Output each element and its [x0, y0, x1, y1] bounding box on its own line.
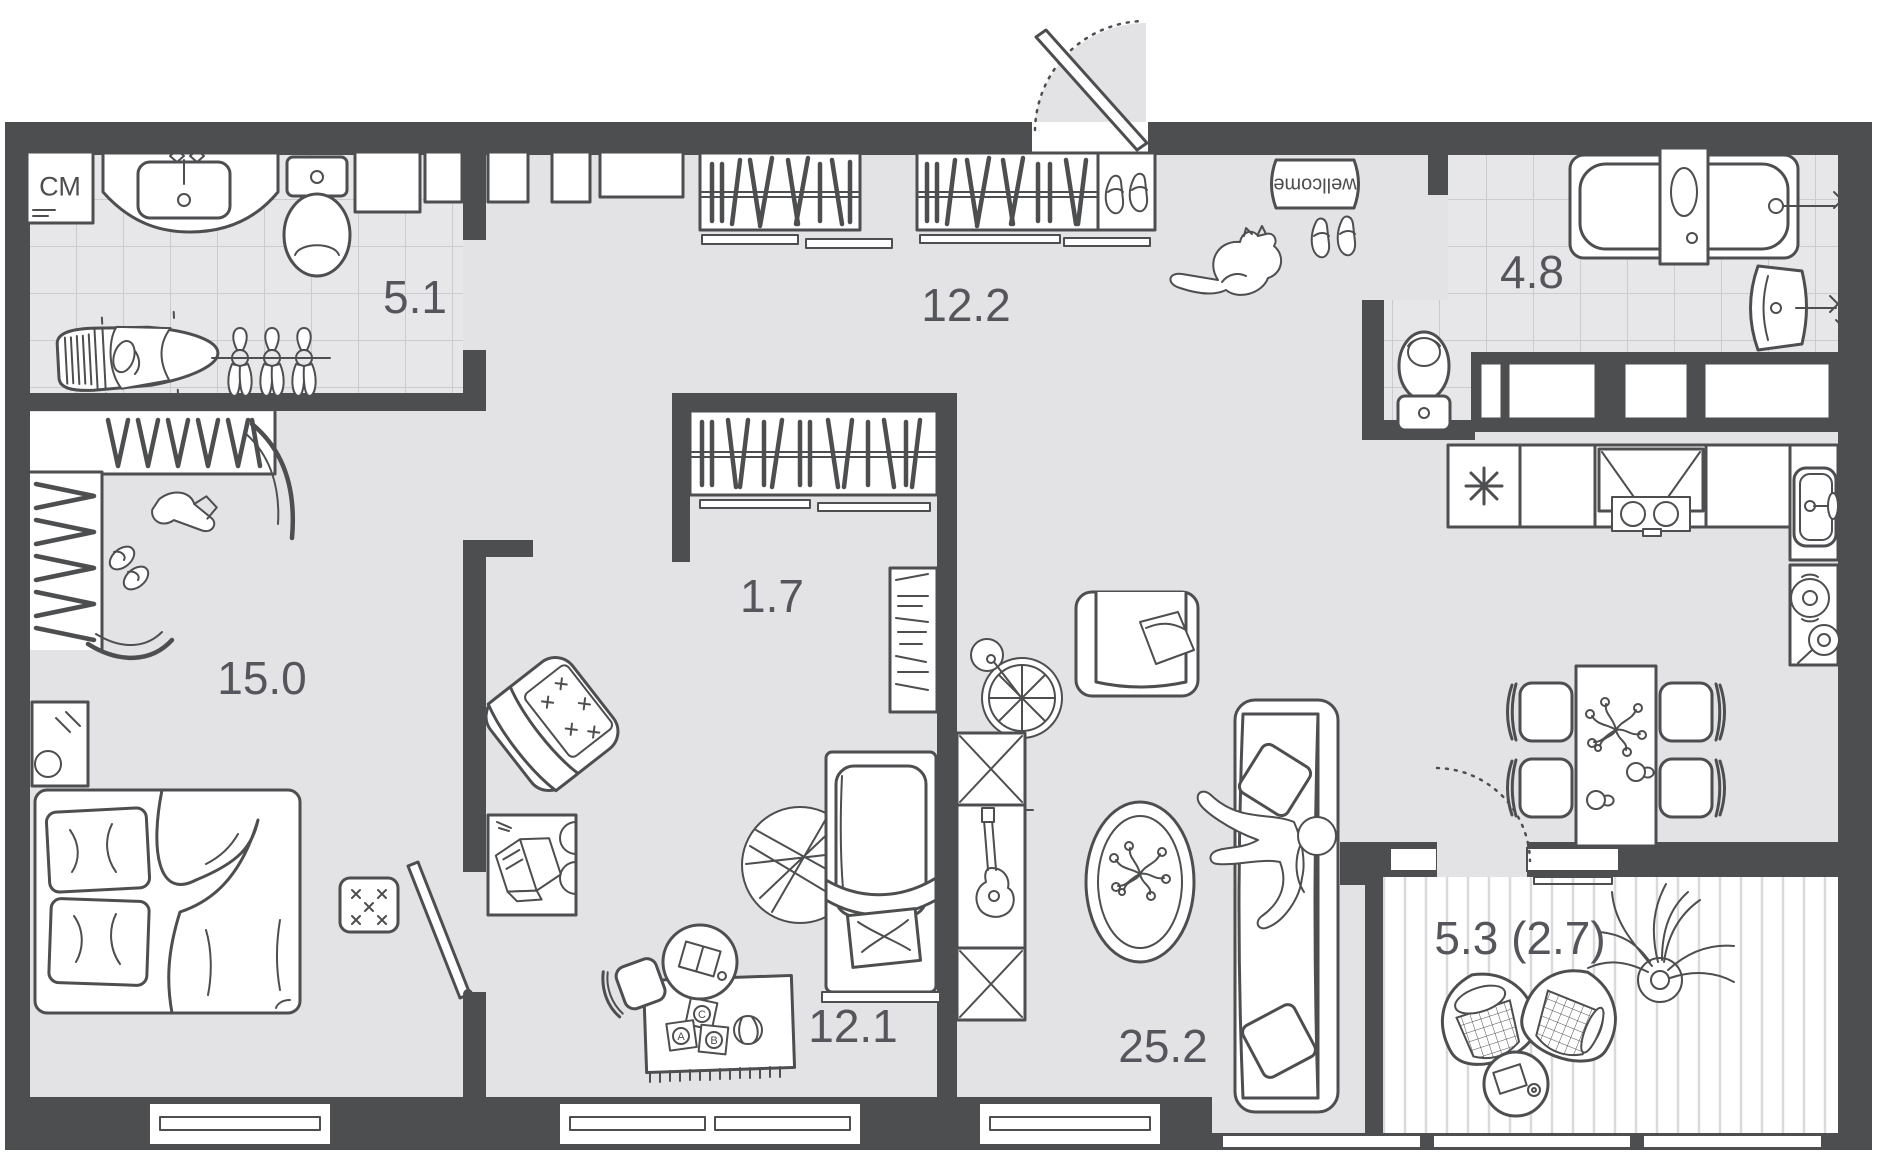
washing-machine-label: СМ: [39, 172, 81, 203]
toy-block-letter: B: [710, 1035, 717, 1047]
kitchen-sink-icon: [1790, 445, 1838, 560]
window-icon: [150, 1104, 330, 1144]
room-label-kids-room: 12.1: [808, 999, 898, 1053]
pouf-icon: [340, 878, 398, 932]
fridge-icon: [1466, 468, 1502, 504]
toilet-icon: [284, 157, 350, 276]
balcony-window: [1390, 848, 1437, 871]
toy-block-letter: C: [698, 1009, 706, 1021]
tv-stand-guitar-icon: [957, 733, 1033, 1020]
balcony-glazing: [1222, 1135, 1822, 1148]
kids-table-icon: [663, 925, 737, 999]
window-icon: [980, 1104, 1160, 1144]
cooktop-hood-icon: [1599, 449, 1703, 536]
bookshelf-icon: [890, 568, 937, 712]
room-label-bedroom: 15.0: [217, 651, 307, 705]
cookware-icon: [1790, 565, 1839, 665]
wardrobe-hangers-icon: [690, 411, 937, 511]
balcony-table-icon: [1484, 1052, 1548, 1116]
shoe-shelf-icon: [1098, 153, 1155, 230]
ball-icon: [734, 1016, 762, 1044]
mirror-icon: [32, 702, 88, 786]
room-label-bathroom-1: 5.1: [383, 270, 447, 324]
balcony-door-opening: [1437, 842, 1527, 877]
oval-rug-icon: [1086, 802, 1194, 962]
floor-plan-drawing: C A B: [0, 0, 1895, 1152]
toilet-icon: [1398, 332, 1450, 430]
room-label-bathroom-2: 4.8: [1500, 245, 1564, 299]
armchair-icon: [1076, 592, 1198, 696]
room-label-living-kitchen: 25.2: [1118, 1019, 1208, 1073]
welcome-mat-label: wellcome: [1273, 173, 1356, 196]
room-label-hallway: 12.2: [921, 278, 1011, 332]
floor-plan: C A B: [0, 0, 1895, 1152]
room-label-closet: 1.7: [740, 569, 804, 623]
room-label-balcony: 5.3 (2.7): [1434, 911, 1605, 965]
toy-block-letter: A: [677, 1031, 685, 1043]
window-icon: [560, 1104, 860, 1144]
desk-book-icon: [488, 815, 576, 915]
bed-icon: [35, 790, 300, 1013]
crib-icon: [822, 752, 940, 1002]
